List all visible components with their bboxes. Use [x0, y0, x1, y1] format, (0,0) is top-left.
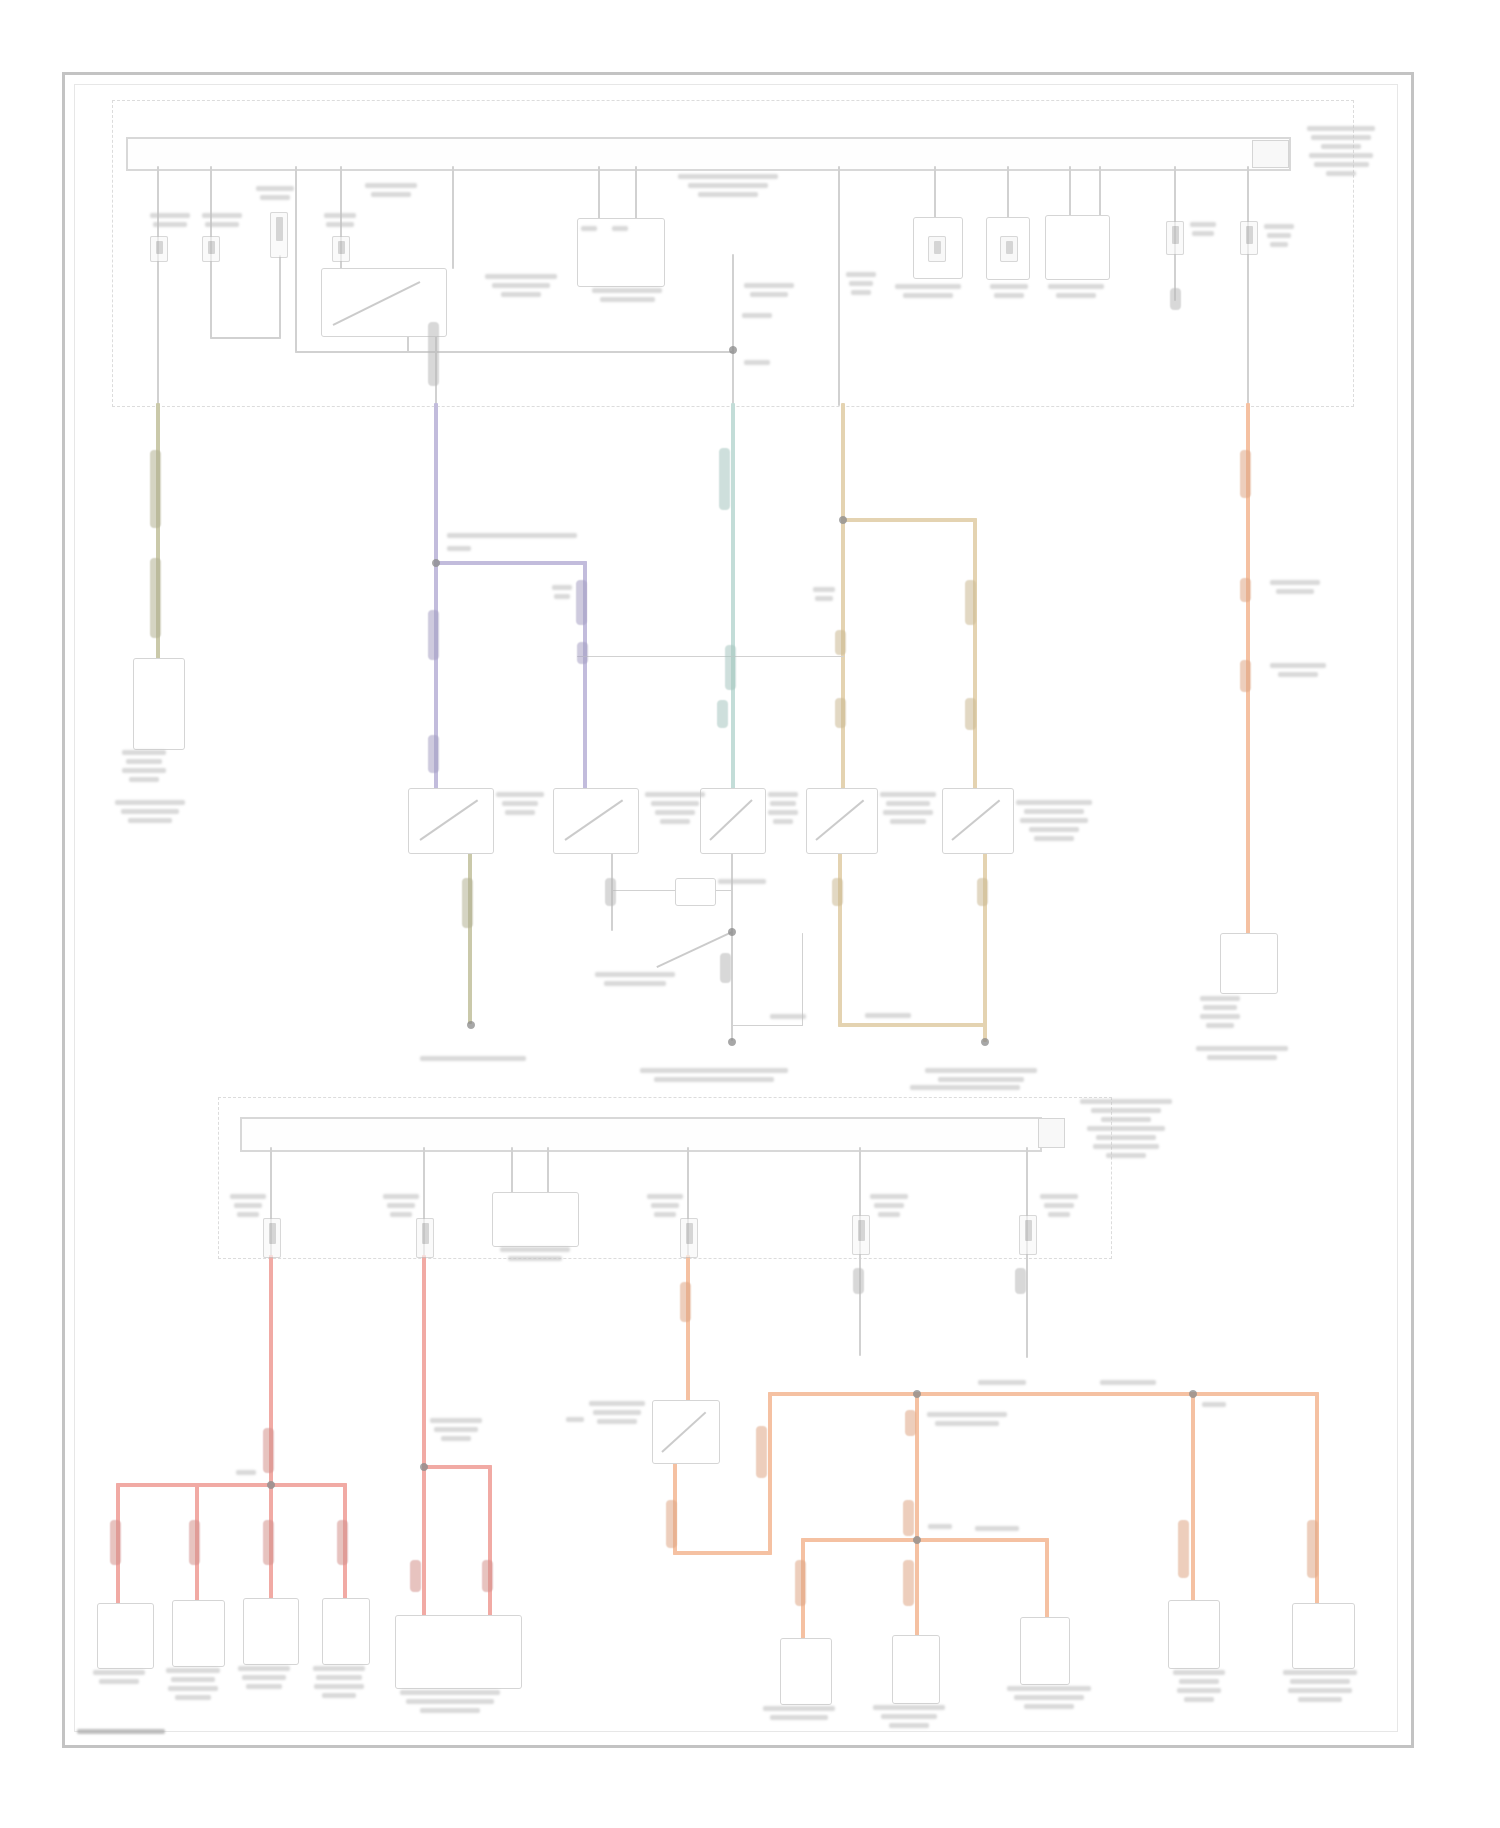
orange-wire-segment — [915, 1538, 919, 1637]
label-smudge-block — [447, 533, 577, 542]
red-wire-segment — [116, 1483, 347, 1487]
label-smudge-block — [430, 1418, 482, 1445]
label-smudge-block — [1173, 1670, 1225, 1706]
wiring-diagram-page — [0, 0, 1500, 1828]
junction-dot — [913, 1390, 921, 1398]
orange-wire-segment — [686, 1255, 690, 1402]
fuse-symbol — [928, 236, 946, 262]
gray-wire-segment — [732, 254, 734, 406]
component-box — [1020, 1617, 1070, 1685]
orange-wire-segment — [801, 1538, 1049, 1542]
orange-wire-segment — [768, 1392, 772, 1555]
label-smudge-block — [581, 226, 597, 235]
junction-dot — [839, 516, 847, 524]
inline-connector-symbol — [150, 450, 161, 528]
amber-wire-segment — [838, 850, 842, 1027]
relay-box — [700, 788, 766, 854]
purple-wire-segment — [434, 403, 438, 790]
junction-dot — [728, 1038, 736, 1046]
inline-connector-symbol — [1240, 578, 1251, 602]
component-box — [172, 1600, 225, 1667]
label-smudge-block — [202, 213, 242, 231]
label-smudge-block — [1307, 126, 1375, 180]
fuse-symbol — [680, 1218, 698, 1258]
inline-connector-symbol — [965, 580, 976, 625]
label-smudge-block — [678, 174, 778, 201]
inline-connector-symbol — [576, 580, 587, 625]
component-box — [892, 1635, 940, 1704]
label-smudge-block — [640, 1068, 788, 1086]
component-box — [1220, 933, 1278, 994]
red-wire-segment — [422, 1465, 492, 1469]
inline-connector-symbol — [903, 1500, 914, 1536]
orange-wire-segment — [673, 1551, 772, 1555]
label-smudge-block — [865, 1013, 911, 1022]
label-smudge-block — [1100, 1380, 1156, 1389]
label-smudge-block — [496, 792, 544, 819]
orange-wire-segment — [1045, 1538, 1049, 1619]
component-box — [243, 1598, 299, 1665]
label-smudge-block — [612, 226, 628, 235]
gray-wire-segment — [838, 166, 840, 406]
label-smudge-block — [768, 792, 798, 828]
inline-connector-symbol — [795, 1560, 806, 1606]
label-smudge-block — [500, 1247, 570, 1265]
label-smudge-block — [420, 1056, 526, 1065]
label-smudge-block — [1202, 1402, 1226, 1411]
fuse-symbol — [1166, 221, 1184, 255]
label-smudge-block — [742, 313, 772, 322]
gray-wire-segment — [1069, 166, 1071, 216]
gray-wire-segment — [612, 890, 676, 891]
label-smudge-block — [150, 213, 190, 231]
power-bus-bar — [240, 1117, 1042, 1152]
amber-wire-segment — [973, 518, 977, 790]
gray-wire-segment — [732, 1025, 803, 1026]
gray-wire-segment — [934, 166, 936, 218]
label-smudge-block — [1283, 1670, 1357, 1706]
label-smudge-block — [313, 1666, 365, 1702]
inline-connector-symbol — [1170, 288, 1181, 310]
junction-dot — [729, 346, 737, 354]
label-smudge-block — [928, 1524, 952, 1533]
label-smudge-block — [744, 360, 770, 369]
gray-wire-segment — [577, 656, 844, 657]
orange-wire-segment — [1191, 1392, 1195, 1602]
inline-connector-symbol — [263, 1428, 274, 1473]
fuse-symbol — [150, 236, 168, 262]
label-smudge-block — [1007, 1686, 1091, 1713]
label-smudge-block — [718, 879, 766, 888]
label-smudge-block — [978, 1380, 1026, 1389]
red-wire-segment — [488, 1465, 492, 1617]
fuse-symbol — [263, 1218, 281, 1258]
inline-connector-symbol — [977, 878, 988, 906]
label-smudge-block — [846, 272, 876, 299]
label-smudge-block — [873, 1705, 945, 1732]
label-smudge-block — [990, 284, 1028, 302]
gray-wire-segment — [547, 1147, 549, 1193]
label-smudge-block — [975, 1526, 1019, 1535]
label-smudge-block — [645, 792, 705, 828]
label-smudge-block — [485, 274, 557, 301]
small-box — [675, 878, 716, 906]
inline-connector-symbol — [189, 1520, 200, 1565]
label-smudge-block — [166, 1668, 220, 1704]
label-smudge-block — [880, 792, 936, 828]
label-smudge-block — [1190, 222, 1216, 240]
junction-dot — [981, 1038, 989, 1046]
relay-box — [806, 788, 878, 854]
fuse-symbol — [202, 236, 220, 262]
relay-box — [553, 788, 639, 854]
label-smudge-block — [93, 1670, 145, 1688]
label-smudge-block — [1080, 1099, 1172, 1162]
inline-connector-symbol — [666, 1500, 677, 1548]
label-smudge-block — [1016, 800, 1092, 845]
label-smudge-block — [122, 750, 166, 786]
label-smudge-block — [592, 288, 662, 306]
teal-wire-segment — [731, 403, 735, 790]
junction-dot — [913, 1536, 921, 1544]
inline-connector-symbol — [717, 700, 728, 728]
inline-connector-symbol — [263, 1520, 274, 1565]
inline-connector-symbol — [1015, 1268, 1026, 1294]
component-box — [1292, 1603, 1355, 1669]
label-smudge-block — [895, 284, 961, 302]
label-smudge-block — [1200, 996, 1240, 1032]
orange-wire-segment — [768, 1392, 1319, 1396]
inline-connector-symbol — [965, 698, 976, 730]
inline-connector-symbol — [756, 1426, 767, 1478]
relay-box — [408, 788, 494, 854]
power-bus-bar — [126, 137, 1291, 171]
label-smudge-block — [770, 1014, 806, 1023]
inline-connector-symbol — [835, 698, 846, 728]
inline-connector-symbol — [577, 642, 588, 664]
label-smudge-block — [447, 546, 471, 555]
label-smudge-block — [647, 1194, 683, 1221]
inline-connector-symbol — [720, 953, 731, 983]
label-smudge-block — [595, 972, 675, 990]
gray-wire-segment — [1099, 166, 1101, 216]
inline-connector-symbol — [1307, 1520, 1318, 1578]
fuse-symbol — [852, 1215, 870, 1255]
footer-caption — [77, 1729, 165, 1738]
bus-bar-endcap — [1038, 1118, 1065, 1148]
inline-connector-symbol — [150, 558, 161, 638]
label-smudge-block — [1264, 224, 1294, 251]
gray-wire-segment — [598, 166, 600, 219]
label-smudge-block — [925, 1068, 1037, 1086]
inline-connector-symbol — [337, 1520, 348, 1565]
label-smudge-block — [115, 800, 185, 827]
label-smudge-block — [238, 1666, 290, 1693]
component-box — [1045, 215, 1110, 280]
fuse-symbol — [270, 212, 288, 258]
gray-wire-segment — [295, 166, 297, 353]
label-smudge-block — [256, 186, 294, 204]
inline-connector-symbol — [410, 1560, 421, 1592]
component-box — [1168, 1600, 1220, 1669]
fuse-symbol — [1019, 1215, 1037, 1255]
junction-dot — [267, 1481, 275, 1489]
inline-connector-symbol — [719, 448, 730, 510]
inline-connector-symbol — [680, 1282, 691, 1322]
olive-wire-segment — [468, 850, 472, 1024]
label-smudge-block — [566, 1417, 584, 1426]
label-smudge-block — [1040, 1194, 1078, 1221]
inline-connector-symbol — [903, 1560, 914, 1606]
label-smudge-block — [763, 1706, 835, 1724]
inline-connector-symbol — [110, 1520, 121, 1565]
inline-connector-symbol — [1178, 1520, 1189, 1578]
label-smudge-block — [870, 1194, 908, 1221]
label-smudge-block — [744, 283, 794, 301]
label-smudge-block — [1048, 284, 1104, 302]
inline-connector-symbol — [835, 630, 846, 655]
fuse-symbol — [1240, 221, 1258, 255]
gray-wire-segment — [210, 337, 281, 339]
label-smudge-block — [324, 213, 356, 231]
module-box — [395, 1615, 522, 1689]
label-smudge-block — [365, 183, 417, 201]
component-box — [492, 1192, 579, 1247]
inline-connector-symbol — [905, 1410, 916, 1436]
fuse-symbol — [416, 1218, 434, 1258]
gray-wire-segment — [714, 890, 733, 891]
bus-bar-endcap — [1252, 140, 1289, 168]
label-smudge-block — [1196, 1046, 1288, 1064]
inline-connector-symbol — [428, 735, 439, 773]
junction-dot — [432, 559, 440, 567]
gray-wire-segment — [157, 166, 159, 406]
gray-wire-segment — [295, 351, 734, 353]
inline-connector-symbol — [462, 878, 473, 928]
amber-wire-segment — [838, 1023, 987, 1027]
gray-wire-segment — [635, 166, 637, 219]
gray-wire-segment — [1247, 166, 1249, 406]
gray-wire-segment — [511, 1147, 513, 1193]
inline-connector-symbol — [853, 1268, 864, 1294]
gray-wire-segment — [1007, 166, 1009, 218]
relay-box — [942, 788, 1014, 854]
purple-wire-segment — [434, 561, 587, 565]
inline-connector-symbol — [605, 878, 616, 906]
junction-dot — [420, 1463, 428, 1471]
junction-dot — [467, 1021, 475, 1029]
amber-wire-segment — [841, 403, 845, 790]
fuse-symbol — [1000, 236, 1018, 262]
component-box — [780, 1638, 832, 1705]
gray-wire-segment — [452, 166, 454, 269]
inline-connector-symbol — [428, 322, 439, 386]
label-smudge-block — [1270, 663, 1326, 681]
label-smudge-block — [910, 1085, 1020, 1094]
label-smudge-block — [1270, 580, 1320, 598]
label-smudge-block — [230, 1194, 266, 1221]
label-smudge-block — [927, 1412, 1007, 1430]
label-smudge-block — [236, 1470, 256, 1479]
diagram-art-layer — [0, 0, 1500, 1828]
gray-wire-segment — [1026, 1256, 1028, 1358]
fuse-symbol — [332, 236, 350, 262]
inline-connector-symbol — [1240, 660, 1251, 692]
label-smudge-block — [813, 587, 835, 605]
amber-wire-segment — [841, 518, 977, 522]
junction-dot — [1189, 1390, 1197, 1398]
component-box — [322, 1598, 370, 1665]
inline-connector-symbol — [725, 645, 736, 690]
inline-connector-symbol — [428, 610, 439, 660]
label-smudge-block — [589, 1401, 645, 1428]
relay-box — [652, 1400, 720, 1464]
component-box — [133, 658, 185, 750]
label-smudge-block — [552, 585, 572, 603]
gray-wire-segment — [802, 933, 803, 1026]
red-wire-segment — [422, 1255, 426, 1617]
inline-connector-symbol — [832, 878, 843, 906]
inline-connector-symbol — [1240, 450, 1251, 498]
label-smudge-block — [400, 1690, 500, 1717]
inline-connector-symbol — [482, 1560, 493, 1592]
gray-wire-segment — [279, 255, 281, 339]
component-box — [97, 1603, 154, 1669]
junction-dot — [728, 928, 736, 936]
label-smudge-block — [383, 1194, 419, 1221]
